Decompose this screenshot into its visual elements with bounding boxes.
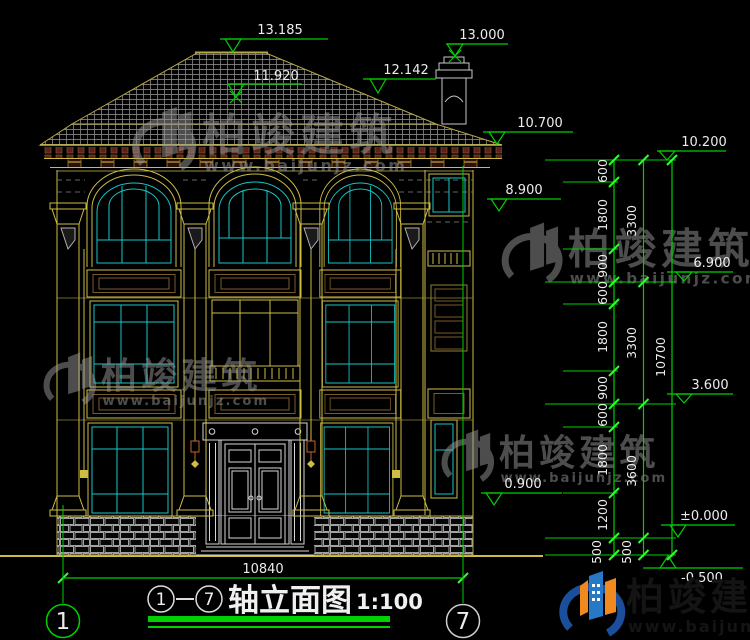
watermark-brand: 柏竣建筑: [101, 355, 262, 397]
elevation-marker-2f: 3.600: [667, 378, 733, 403]
dim-chain-outer-labels: 10700: [653, 337, 668, 377]
elevation-value: 10.700: [517, 116, 563, 131]
title-axis-from: 1: [156, 590, 167, 610]
elevation-value: 0.900: [504, 477, 541, 492]
watermark-url: www.baijunjz.com: [204, 156, 407, 175]
dim-value: 1800: [595, 321, 610, 353]
dim-value: 1800: [595, 444, 610, 476]
dim-value: 500: [589, 540, 604, 564]
center-arch-glazing: [219, 182, 291, 263]
title-underline-thick: [148, 616, 390, 622]
axis-bubble-right: 7: [447, 605, 480, 638]
drawing-title: 1 7 轴立面图 1:100: [148, 583, 423, 628]
title-text: 轴立面图: [228, 583, 352, 619]
logo-building-blue: [589, 571, 603, 620]
cad-elevation-drawing: 柏竣建筑 www.baijunjz.com 柏竣建筑 www.baijunjz.…: [0, 0, 750, 640]
logo-building-orange: [580, 580, 588, 616]
dim-value: 600: [595, 159, 610, 183]
dim-value: 900: [595, 254, 610, 278]
dim-value: 600: [595, 403, 610, 427]
elevation-marker-arch: 8.900: [487, 183, 561, 211]
watermark: 柏竣建筑 www.baijunjz.com: [47, 353, 270, 409]
watermark-url: www.baijunjz.com: [102, 394, 269, 409]
bay-right-arched-window: [320, 169, 401, 516]
pilaster: [50, 203, 86, 516]
bay-left-arched-window: [87, 169, 181, 516]
elevation-marker-eave: 10.700: [483, 116, 573, 144]
elevation-value: ±0.000: [680, 509, 728, 524]
elevation-marker-ridge: 13.185: [220, 23, 328, 52]
title-axis-to: 7: [204, 590, 215, 610]
dim-value: 3600: [624, 455, 639, 487]
title-scale: 1:100: [356, 590, 423, 614]
axis-number: 1: [56, 609, 71, 635]
dim-value: 1800: [595, 199, 610, 231]
stone-base: [57, 516, 473, 555]
logo-brand-text: 柏竣建筑: [626, 575, 750, 619]
elevation-value: 13.185: [257, 23, 303, 38]
dim-value: 1200: [595, 499, 610, 531]
elevation-value: 12.142: [383, 63, 429, 78]
dim-value: 10700: [653, 337, 668, 377]
elevation-value: 11.920: [253, 69, 299, 84]
elevation-value: 10.200: [681, 135, 727, 150]
elevation-value: 6.900: [693, 256, 730, 271]
elevation-marker-chimney: 13.000: [446, 28, 508, 62]
chimney: [436, 57, 472, 124]
dim-value: 600: [595, 281, 610, 305]
elevation-value: 3.600: [691, 378, 728, 393]
watermark-brand: 柏竣建筑: [202, 110, 398, 161]
elevation-marker-roof-step: 12.142: [363, 63, 436, 93]
brand-logo: 柏竣建筑 www.baijunjz.com: [563, 571, 750, 636]
axis-bubble-left: 1: [47, 605, 80, 638]
dim-value: 3300: [624, 327, 639, 359]
axis-number: 7: [456, 609, 471, 635]
dim-chain-inner-labels: 600 1800 900 600 1800 900 600 1800 1200 …: [589, 159, 610, 564]
overall-width-value: 10840: [242, 562, 283, 577]
elevation-value: 8.900: [505, 183, 542, 198]
drawing-svg: 柏竣建筑 www.baijunjz.com 柏竣建筑 www.baijunjz.…: [0, 0, 750, 640]
dim-value: 3300: [624, 205, 639, 237]
elevation-marker-parapet: 10.200: [657, 135, 727, 160]
title-underline-thin: [148, 626, 390, 628]
elevation-value: 13.000: [459, 28, 505, 43]
logo-url-text: www.baijunjz.com: [628, 617, 750, 636]
dim-value: 900: [595, 376, 610, 400]
logo-building-orange-2: [605, 578, 616, 615]
dim-value: 500: [619, 540, 634, 564]
